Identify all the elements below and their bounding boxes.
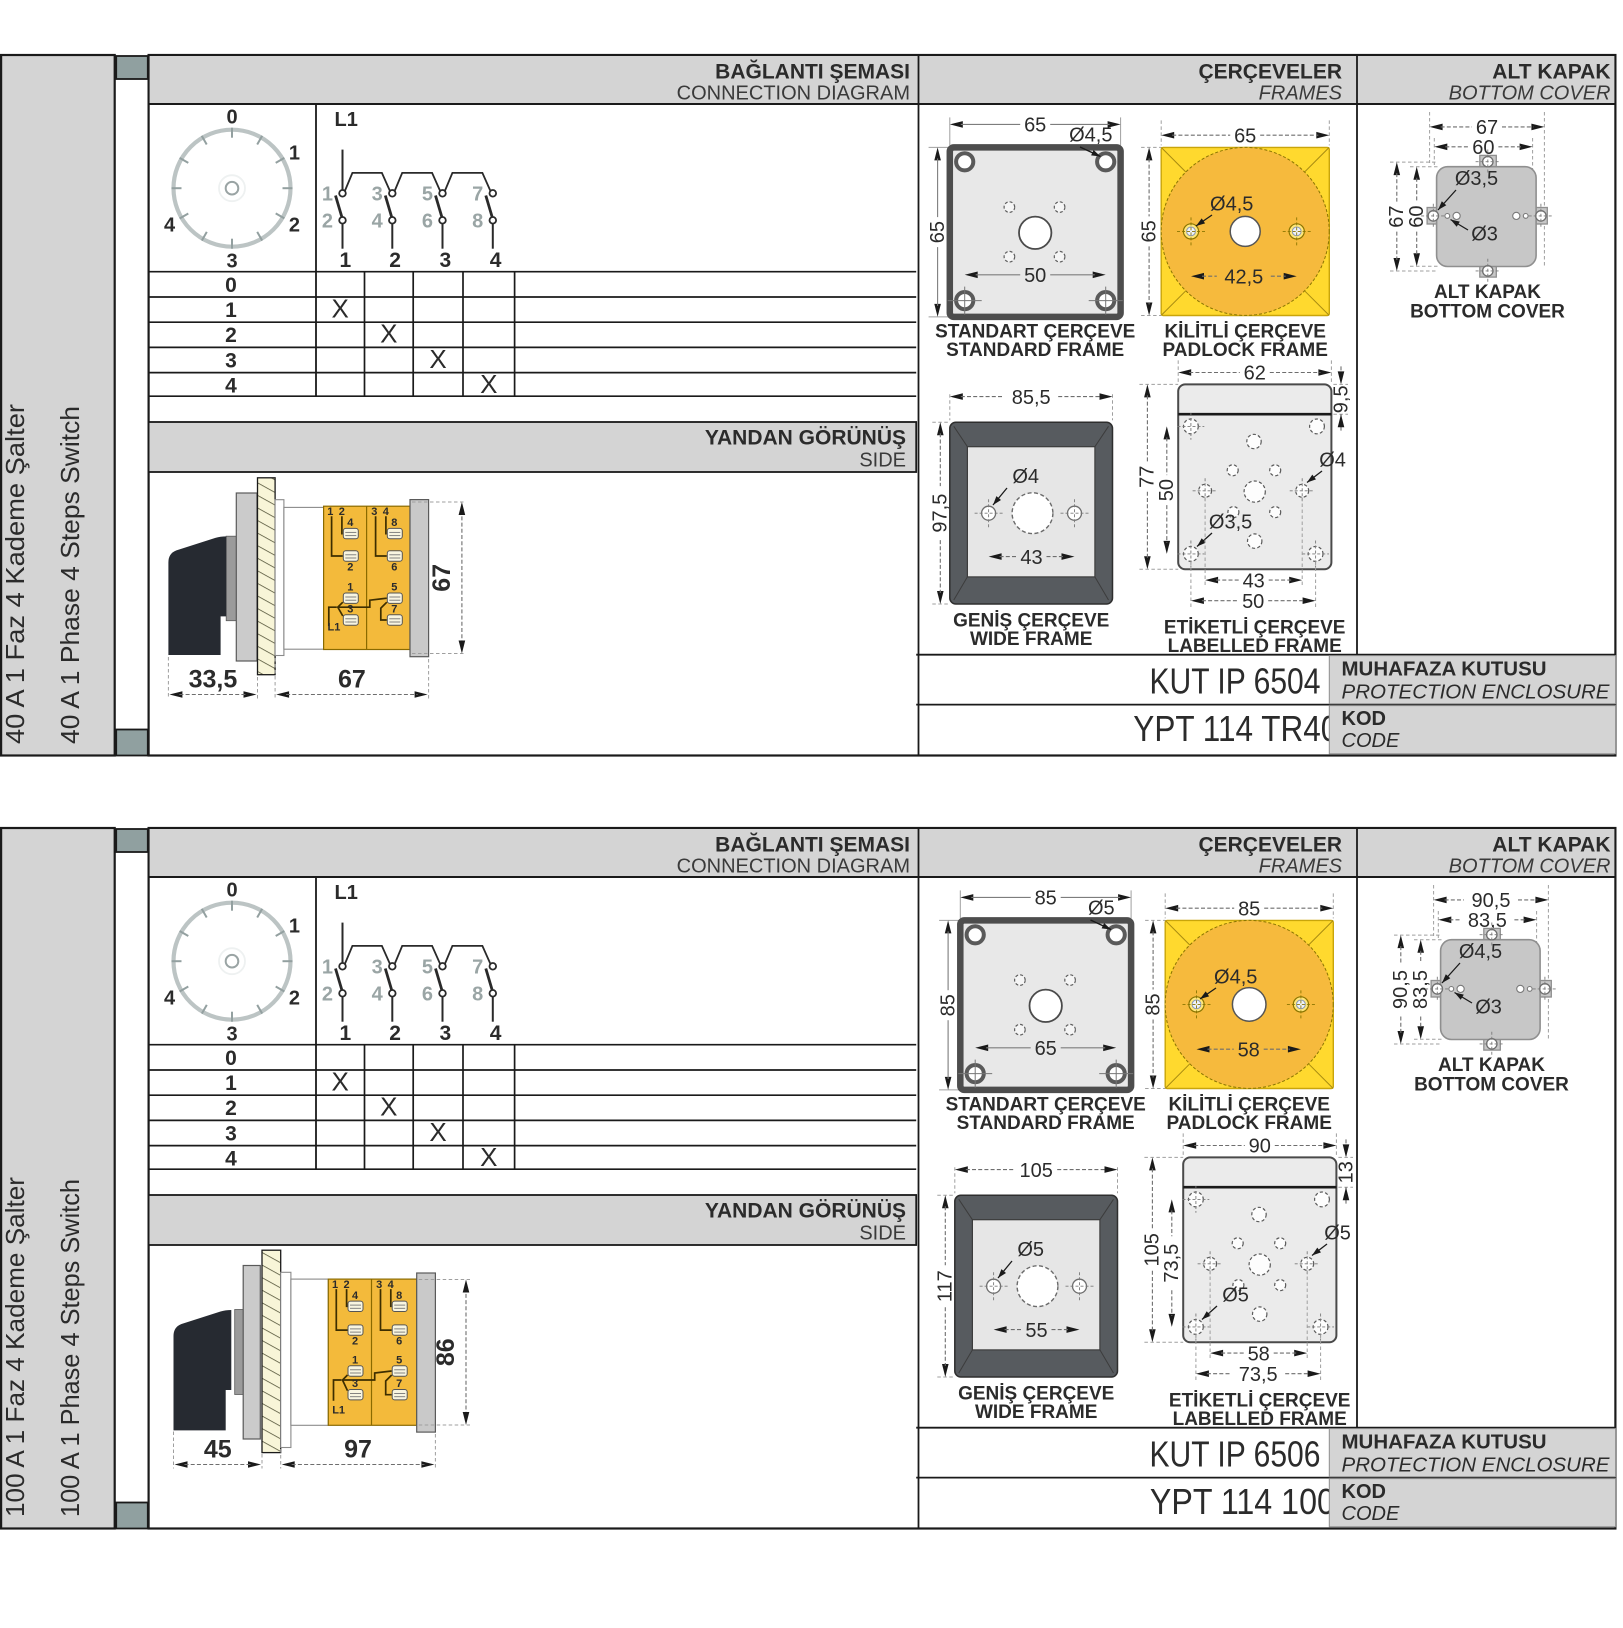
svg-text:90,5: 90,5 xyxy=(1472,890,1511,912)
svg-text:100 A 1 Faz 4 Kademe Şalter: 100 A 1 Faz 4 Kademe Şalter xyxy=(0,1177,30,1517)
svg-text:ALT KAPAK: ALT KAPAK xyxy=(1434,282,1541,303)
svg-text:KUT IP 6504: KUT IP 6504 xyxy=(1150,661,1321,702)
svg-text:KOD: KOD xyxy=(1342,708,1386,730)
svg-text:4: 4 xyxy=(164,987,176,1009)
svg-text:X: X xyxy=(429,344,446,374)
svg-text:X: X xyxy=(332,294,349,324)
svg-text:7: 7 xyxy=(472,183,483,205)
svg-text:Ø3,5: Ø3,5 xyxy=(1209,512,1252,534)
svg-text:4: 4 xyxy=(347,517,354,529)
svg-text:4: 4 xyxy=(490,1022,502,1045)
svg-text:L1: L1 xyxy=(335,882,358,904)
svg-text:4: 4 xyxy=(225,1148,237,1171)
svg-text:L1: L1 xyxy=(332,1405,345,1417)
svg-text:KUT IP 6506: KUT IP 6506 xyxy=(1150,1434,1321,1475)
svg-text:SIDE: SIDE xyxy=(859,1223,906,1245)
svg-text:MUHAFAZA KUTUSU: MUHAFAZA KUTUSU xyxy=(1342,1432,1547,1454)
svg-text:BOTTOM COVER: BOTTOM COVER xyxy=(1410,302,1565,323)
svg-text:BOTTOM COVER: BOTTOM COVER xyxy=(1449,83,1611,105)
svg-text:2: 2 xyxy=(322,983,333,1005)
svg-text:86: 86 xyxy=(432,1338,460,1366)
svg-text:3: 3 xyxy=(439,1022,451,1045)
svg-text:85: 85 xyxy=(1142,993,1164,1015)
svg-text:Ø4,5: Ø4,5 xyxy=(1459,941,1502,963)
svg-text:L1: L1 xyxy=(335,109,358,131)
svg-text:Ø5: Ø5 xyxy=(1088,898,1115,920)
svg-text:L1: L1 xyxy=(328,622,341,634)
svg-text:4: 4 xyxy=(225,375,237,398)
svg-text:42,5: 42,5 xyxy=(1224,266,1263,288)
svg-text:8: 8 xyxy=(391,517,397,529)
svg-text:62: 62 xyxy=(1244,363,1266,385)
svg-text:3: 3 xyxy=(347,604,353,616)
svg-text:2: 2 xyxy=(322,210,333,232)
svg-text:60: 60 xyxy=(1406,205,1428,227)
svg-text:YANDAN GÖRÜNÜŞ: YANDAN GÖRÜNÜŞ xyxy=(705,427,906,450)
svg-text:3: 3 xyxy=(371,506,377,518)
svg-text:BOTTOM COVER: BOTTOM COVER xyxy=(1414,1075,1569,1096)
svg-text:WIDE FRAME: WIDE FRAME xyxy=(970,629,1092,650)
svg-text:X: X xyxy=(380,1092,397,1122)
svg-text:3: 3 xyxy=(226,1023,237,1045)
svg-text:CODE: CODE xyxy=(1342,730,1400,752)
svg-text:90,5: 90,5 xyxy=(1390,970,1412,1009)
svg-text:SIDE: SIDE xyxy=(859,450,906,472)
svg-text:2: 2 xyxy=(289,987,300,1009)
svg-text:97: 97 xyxy=(344,1436,372,1464)
svg-text:4: 4 xyxy=(352,1290,359,1302)
svg-text:Ø4,5: Ø4,5 xyxy=(1214,967,1257,989)
svg-text:67: 67 xyxy=(1386,205,1408,227)
svg-text:YPT 114 100: YPT 114 100 xyxy=(1150,1481,1335,1522)
svg-text:58: 58 xyxy=(1238,1039,1260,1061)
svg-text:65: 65 xyxy=(1035,1038,1057,1060)
svg-text:1: 1 xyxy=(352,1355,358,1367)
svg-text:1: 1 xyxy=(225,299,237,322)
svg-text:ÇERÇEVELER: ÇERÇEVELER xyxy=(1198,834,1342,857)
svg-text:40 A 1 Faz 4 Kademe Şalter: 40 A 1 Faz 4 Kademe Şalter xyxy=(0,404,30,744)
svg-text:Ø5: Ø5 xyxy=(1324,1223,1351,1245)
svg-text:Ø4,5: Ø4,5 xyxy=(1069,125,1112,147)
svg-text:65: 65 xyxy=(927,221,949,243)
svg-text:3: 3 xyxy=(372,956,383,978)
svg-text:2: 2 xyxy=(389,249,401,272)
svg-text:8: 8 xyxy=(396,1290,402,1302)
svg-text:3: 3 xyxy=(352,1378,358,1390)
svg-text:2: 2 xyxy=(347,562,353,574)
svg-text:6: 6 xyxy=(422,210,433,232)
svg-text:Ø4: Ø4 xyxy=(1012,466,1039,488)
svg-text:PADLOCK FRAME: PADLOCK FRAME xyxy=(1163,340,1328,361)
svg-text:3: 3 xyxy=(225,349,237,372)
svg-text:0: 0 xyxy=(225,1047,237,1070)
svg-text:43: 43 xyxy=(1243,570,1265,592)
svg-text:PADLOCK FRAME: PADLOCK FRAME xyxy=(1167,1113,1332,1134)
svg-text:Ø4: Ø4 xyxy=(1319,450,1346,472)
svg-text:3: 3 xyxy=(226,250,237,272)
svg-text:5: 5 xyxy=(422,183,433,205)
svg-text:8: 8 xyxy=(472,210,483,232)
svg-text:PROTECTION ENCLOSURE: PROTECTION ENCLOSURE xyxy=(1342,681,1610,704)
svg-text:73,5: 73,5 xyxy=(1161,1244,1183,1283)
svg-text:7: 7 xyxy=(391,604,397,616)
svg-text:Ø3: Ø3 xyxy=(1475,997,1502,1019)
svg-text:BAĞLANTI ŞEMASI: BAĞLANTI ŞEMASI xyxy=(715,833,910,857)
svg-text:85: 85 xyxy=(1035,888,1057,910)
svg-text:3: 3 xyxy=(376,1279,382,1291)
svg-text:3: 3 xyxy=(439,249,451,272)
svg-text:KOD: KOD xyxy=(1342,1481,1386,1503)
svg-text:43: 43 xyxy=(1020,547,1042,569)
svg-text:YANDAN GÖRÜNÜŞ: YANDAN GÖRÜNÜŞ xyxy=(705,1200,906,1223)
svg-text:0: 0 xyxy=(226,879,237,901)
svg-text:0: 0 xyxy=(226,106,237,128)
svg-text:5: 5 xyxy=(422,956,433,978)
svg-text:X: X xyxy=(332,1067,349,1097)
svg-text:65: 65 xyxy=(1138,220,1160,242)
svg-text:4: 4 xyxy=(372,983,384,1005)
svg-text:4: 4 xyxy=(372,210,384,232)
svg-text:2: 2 xyxy=(225,1097,237,1120)
svg-text:1: 1 xyxy=(332,1279,338,1291)
svg-text:X: X xyxy=(480,369,497,399)
svg-text:Ø3: Ø3 xyxy=(1471,224,1498,246)
svg-text:117: 117 xyxy=(935,1270,957,1302)
svg-text:50: 50 xyxy=(1242,591,1264,613)
svg-text:X: X xyxy=(380,319,397,349)
svg-text:Ø3,5: Ø3,5 xyxy=(1455,168,1498,190)
svg-text:STANDARD FRAME: STANDARD FRAME xyxy=(946,340,1124,361)
svg-text:7: 7 xyxy=(396,1378,402,1390)
svg-text:1: 1 xyxy=(289,915,300,937)
svg-text:1: 1 xyxy=(225,1072,237,1095)
svg-text:85,5: 85,5 xyxy=(1012,387,1051,409)
svg-text:PROTECTION ENCLOSURE: PROTECTION ENCLOSURE xyxy=(1342,1454,1610,1477)
svg-text:YPT 114 TR40: YPT 114 TR40 xyxy=(1133,708,1338,749)
svg-text:CODE: CODE xyxy=(1342,1503,1400,1525)
svg-text:67: 67 xyxy=(338,666,366,694)
svg-text:5: 5 xyxy=(391,582,397,594)
svg-text:1: 1 xyxy=(322,183,333,205)
svg-text:13: 13 xyxy=(1336,1161,1358,1183)
svg-text:90: 90 xyxy=(1249,1136,1271,1158)
svg-text:MUHAFAZA KUTUSU: MUHAFAZA KUTUSU xyxy=(1342,659,1547,681)
svg-text:45: 45 xyxy=(204,1436,232,1464)
svg-text:4: 4 xyxy=(388,1279,395,1291)
svg-text:9,5: 9,5 xyxy=(1331,385,1353,413)
svg-text:WIDE FRAME: WIDE FRAME xyxy=(975,1402,1097,1423)
svg-text:67: 67 xyxy=(1476,117,1498,139)
svg-text:ALT KAPAK: ALT KAPAK xyxy=(1492,61,1610,84)
svg-text:2: 2 xyxy=(343,1279,349,1291)
svg-text:2: 2 xyxy=(289,214,300,236)
svg-text:X: X xyxy=(429,1117,446,1147)
svg-text:40 A 1 Phase 4 Steps Switch: 40 A 1 Phase 4 Steps Switch xyxy=(55,406,85,744)
svg-text:6: 6 xyxy=(422,983,433,1005)
svg-text:58: 58 xyxy=(1248,1343,1270,1365)
svg-text:2: 2 xyxy=(389,1022,401,1045)
svg-text:85: 85 xyxy=(937,994,959,1016)
svg-text:1: 1 xyxy=(339,249,351,272)
svg-text:1: 1 xyxy=(347,582,353,594)
svg-text:55: 55 xyxy=(1025,1320,1047,1342)
svg-text:2: 2 xyxy=(339,506,345,518)
svg-text:1: 1 xyxy=(327,506,333,518)
svg-text:3: 3 xyxy=(372,183,383,205)
svg-text:Ø5: Ø5 xyxy=(1222,1285,1249,1307)
svg-text:8: 8 xyxy=(472,983,483,1005)
svg-text:CONNECTION DIAGRAM: CONNECTION DIAGRAM xyxy=(677,83,910,105)
svg-text:33,5: 33,5 xyxy=(189,666,238,694)
svg-text:85: 85 xyxy=(1238,898,1260,920)
svg-text:FRAMES: FRAMES xyxy=(1259,83,1343,105)
svg-text:50: 50 xyxy=(1024,265,1046,287)
svg-text:0: 0 xyxy=(225,274,237,297)
svg-text:FRAMES: FRAMES xyxy=(1259,856,1343,878)
svg-text:100 A 1 Phase 4 Steps Switch: 100 A 1 Phase 4 Steps Switch xyxy=(55,1179,85,1517)
svg-text:6: 6 xyxy=(396,1336,402,1348)
svg-text:6: 6 xyxy=(391,562,397,574)
svg-text:4: 4 xyxy=(164,214,176,236)
svg-text:4: 4 xyxy=(383,506,390,518)
svg-text:7: 7 xyxy=(472,956,483,978)
svg-text:CONNECTION DIAGRAM: CONNECTION DIAGRAM xyxy=(677,856,910,878)
svg-text:Ø5: Ø5 xyxy=(1017,1239,1044,1261)
svg-text:BOTTOM COVER: BOTTOM COVER xyxy=(1449,856,1611,878)
svg-text:ALT KAPAK: ALT KAPAK xyxy=(1492,834,1610,857)
svg-text:65: 65 xyxy=(1024,115,1046,137)
svg-text:1: 1 xyxy=(289,142,300,164)
svg-text:4: 4 xyxy=(490,249,502,272)
svg-text:ALT KAPAK: ALT KAPAK xyxy=(1438,1055,1545,1076)
svg-text:STANDARD FRAME: STANDARD FRAME xyxy=(957,1113,1135,1134)
svg-text:67: 67 xyxy=(428,564,456,592)
svg-text:1: 1 xyxy=(339,1022,351,1045)
svg-text:97,5: 97,5 xyxy=(930,494,952,533)
svg-text:83,5: 83,5 xyxy=(1410,970,1432,1009)
svg-text:2: 2 xyxy=(352,1336,358,1348)
svg-text:105: 105 xyxy=(1020,1160,1053,1182)
svg-text:65: 65 xyxy=(1234,125,1256,147)
svg-text:73,5: 73,5 xyxy=(1239,1364,1278,1386)
svg-text:5: 5 xyxy=(396,1355,402,1367)
svg-text:X: X xyxy=(480,1142,497,1172)
svg-text:BAĞLANTI ŞEMASI: BAĞLANTI ŞEMASI xyxy=(715,60,910,84)
svg-text:2: 2 xyxy=(225,324,237,347)
svg-text:ÇERÇEVELER: ÇERÇEVELER xyxy=(1198,61,1342,84)
svg-text:50: 50 xyxy=(1156,479,1178,501)
svg-text:1: 1 xyxy=(322,956,333,978)
svg-text:Ø4,5: Ø4,5 xyxy=(1210,194,1253,216)
svg-text:3: 3 xyxy=(225,1122,237,1145)
